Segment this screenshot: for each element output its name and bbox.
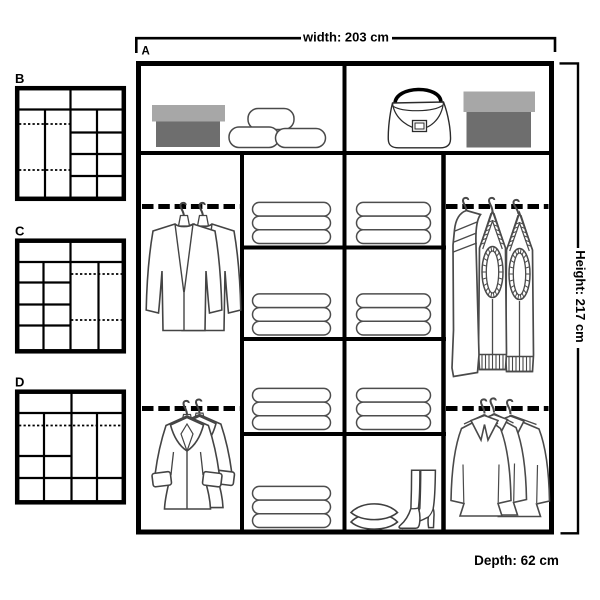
svg-text:D: D [15,375,24,390]
svg-text:A: A [142,46,150,58]
svg-text:B: B [15,71,24,86]
svg-text:Height: 217 cm: Height: 217 cm [573,250,588,342]
svg-text:Depth: 62 cm: Depth: 62 cm [474,553,559,568]
svg-text:width: 203 cm: width: 203 cm [302,29,389,44]
svg-text:C: C [15,224,25,239]
